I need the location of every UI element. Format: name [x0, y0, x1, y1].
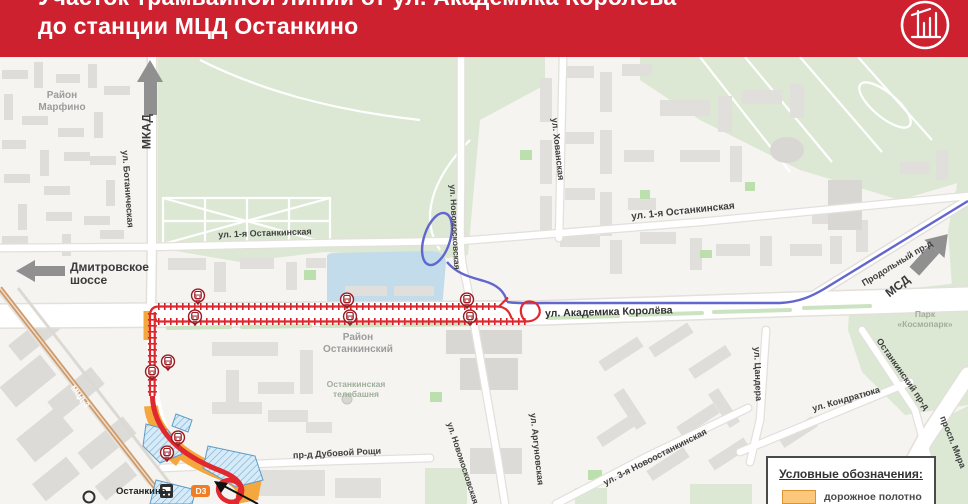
station-name: Останкино	[116, 486, 166, 497]
legend-box: Условные обозначения: дорожное полотно	[766, 456, 936, 504]
page-title-line1: Участок трамвайной линии от ул. Академик…	[38, 0, 676, 12]
legend-title: Условные обозначения:	[768, 467, 934, 481]
district-label-marfino: Район Марфино	[30, 90, 94, 113]
legend-item-label: дорожное полотно	[824, 491, 922, 503]
road-surface-swatch	[782, 490, 816, 504]
mkad-arrow-label: МКАД	[140, 112, 153, 152]
legend-item-road-surface: дорожное полотно	[782, 490, 934, 504]
district-label-ostankinsky: Район Останкинский	[310, 332, 406, 355]
landmark-label-kosmopark: Парк «Космопарк»	[896, 310, 954, 330]
station-chip-ostankino: Останкино D3	[116, 485, 210, 497]
dmitrovskoe-arrow-label: Дмитровское шоссе	[70, 261, 154, 286]
header-banner: Участок трамвайной линии от ул. Академик…	[0, 0, 968, 57]
landmark-label-tv-tower: Останкинская телебашня	[316, 380, 396, 400]
page-title-line2: до станции МЦД Останкино	[38, 12, 676, 41]
station-line-badge: D3	[191, 485, 210, 497]
infographic-page: Район Марфино МКАД ул. Ботаническая Дмит…	[0, 0, 968, 504]
page-title: Участок трамвайной линии от ул. Академик…	[38, 0, 676, 41]
construction-complex-logo	[896, 0, 954, 55]
